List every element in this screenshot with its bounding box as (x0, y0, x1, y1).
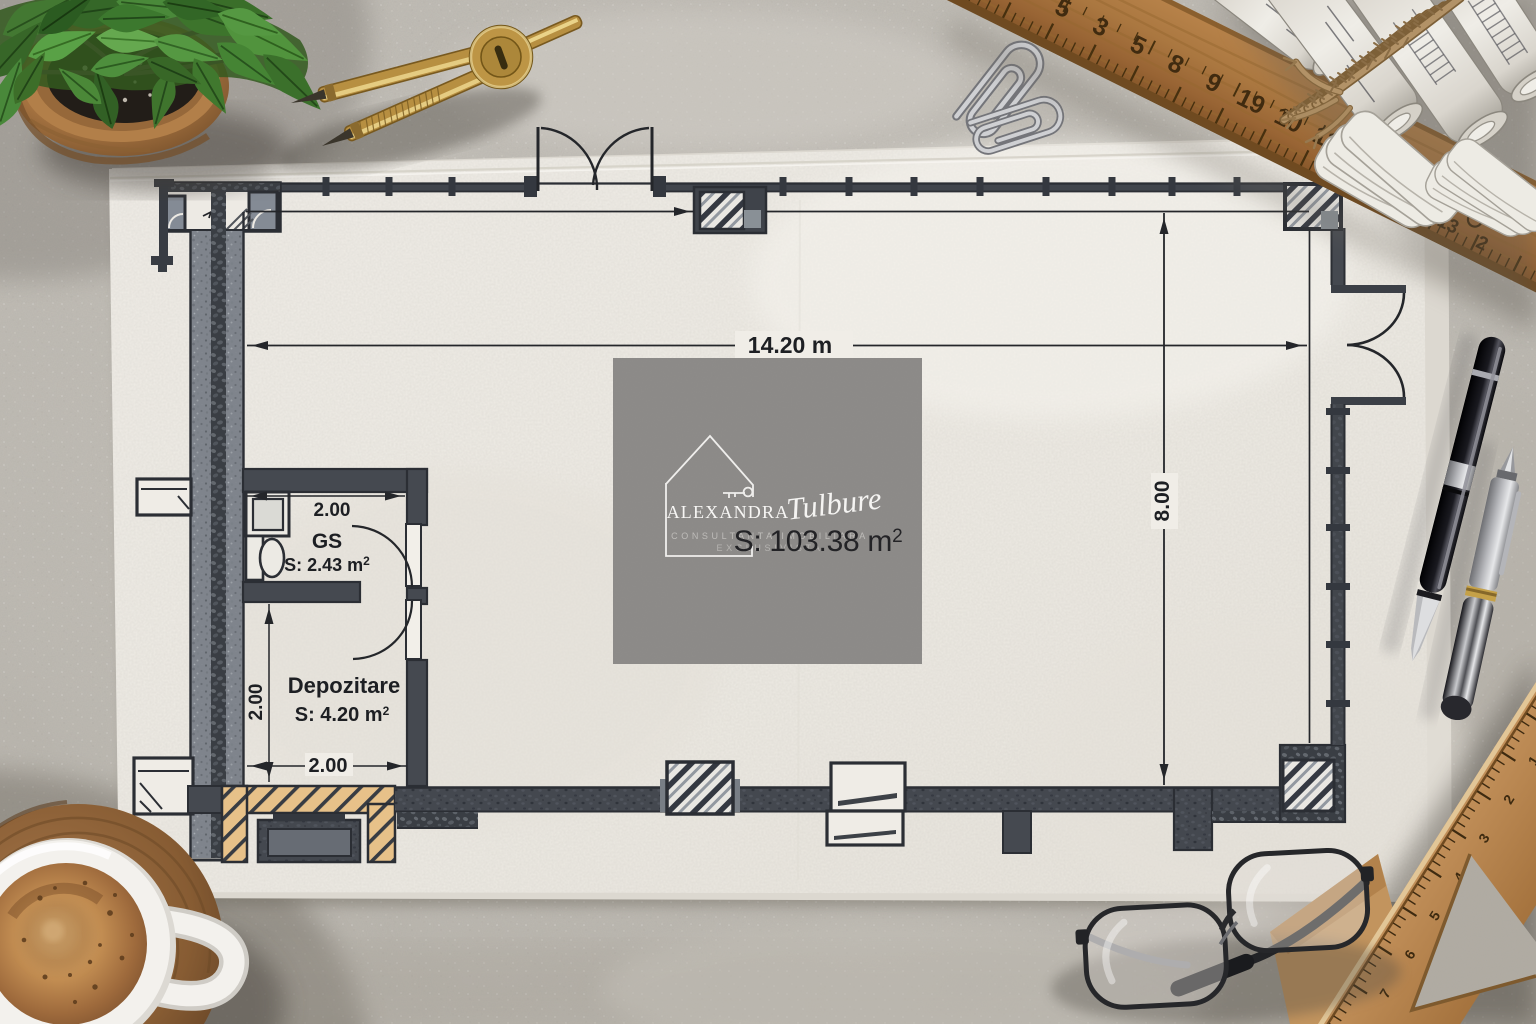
svg-text:S: 4.20 m2: S: 4.20 m2 (295, 704, 390, 726)
svg-text:14.20 m: 14.20 m (748, 332, 832, 358)
svg-text:2.00: 2.00 (314, 500, 351, 521)
svg-text:S: 2.43 m2: S: 2.43 m2 (284, 554, 370, 575)
svg-text:2.00: 2.00 (246, 684, 267, 721)
svg-text:GS: GS (312, 530, 342, 553)
svg-text:ALEXANDRA: ALEXANDRA (667, 502, 790, 522)
svg-text:S: 103.38 m2: S: 103.38 m2 (734, 525, 903, 558)
svg-text:2.00: 2.00 (309, 755, 348, 777)
svg-text:8.00: 8.00 (1151, 481, 1174, 522)
svg-text:Depozitare: Depozitare (288, 673, 400, 698)
